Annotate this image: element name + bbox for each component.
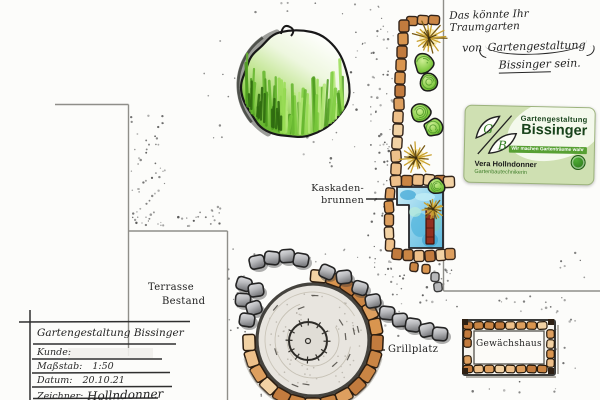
title-block-header: Gartengestaltung Bissinger bbox=[37, 327, 184, 339]
handwritten-line1: Das könnte Ihr Traumgarten bbox=[449, 6, 598, 34]
tree-drawing bbox=[238, 26, 350, 137]
label-kaskadenbrunnen-line1: Kaskaden- bbox=[300, 183, 364, 195]
handwritten-note: Das könnte Ihr Traumgarten von Gartenges… bbox=[449, 6, 599, 73]
card-company-line2: Bissinger bbox=[509, 123, 588, 139]
title-block-row-massstab: Maßstab:1:50 bbox=[37, 361, 114, 372]
label-gewaechshaus: Gewächshaus bbox=[473, 339, 545, 349]
row-label: Zeichner: bbox=[37, 391, 83, 400]
label-terrasse-line2: Bestand bbox=[162, 296, 205, 307]
row-value: 20.10.21 bbox=[82, 375, 124, 386]
label-terrasse: Terrasse Bestand bbox=[148, 282, 205, 307]
logo-letter-g: G bbox=[483, 122, 493, 136]
row-value-signature: Hollndonner bbox=[87, 387, 164, 400]
label-kaskadenbrunnen-line2: brunnen bbox=[300, 195, 364, 207]
row-label: Maßstab: bbox=[37, 361, 82, 372]
label-grillplatz: Grillplatz bbox=[388, 344, 438, 355]
card-tagline: Wir machen Gartenträume wahr bbox=[508, 146, 587, 155]
card-person-name: Vera Hollndonner bbox=[475, 159, 537, 169]
garden-plan-scan: Kaskaden- brunnen Terrasse Bestand Grill… bbox=[0, 0, 600, 400]
row-value: 1:50 bbox=[92, 361, 113, 372]
handwritten-company: Gartengestaltung bbox=[485, 38, 587, 56]
card-company: Gartengestaltung Bissinger Wir machen Ga… bbox=[508, 114, 587, 157]
row-label: Datum: bbox=[37, 375, 72, 386]
card-person-title: Gartenbautechnikerin bbox=[474, 169, 536, 176]
card-person: Vera Hollndonner Gartenbautechnikerin bbox=[474, 159, 536, 176]
title-block-row-zeichner: Zeichner:Hollndonner bbox=[37, 388, 163, 400]
logo-letter-b: B bbox=[497, 138, 507, 152]
title-block-row-kunde: Kunde: bbox=[37, 347, 81, 358]
title-block-row-datum: Datum:20.10.21 bbox=[37, 375, 125, 386]
business-card: G B Gartengestaltung Bissinger Wir mache… bbox=[463, 105, 596, 186]
label-kaskadenbrunnen: Kaskaden- brunnen bbox=[300, 183, 364, 206]
handwritten-sein: sein. bbox=[554, 57, 581, 71]
handwritten-bissinger: Bissinger bbox=[498, 57, 551, 73]
label-terrasse-line1: Terrasse bbox=[148, 282, 205, 293]
card-seal-icon bbox=[570, 155, 585, 170]
handwritten-line2: von Gartengestaltung bbox=[450, 38, 598, 55]
row-label: Kunde: bbox=[37, 347, 71, 358]
